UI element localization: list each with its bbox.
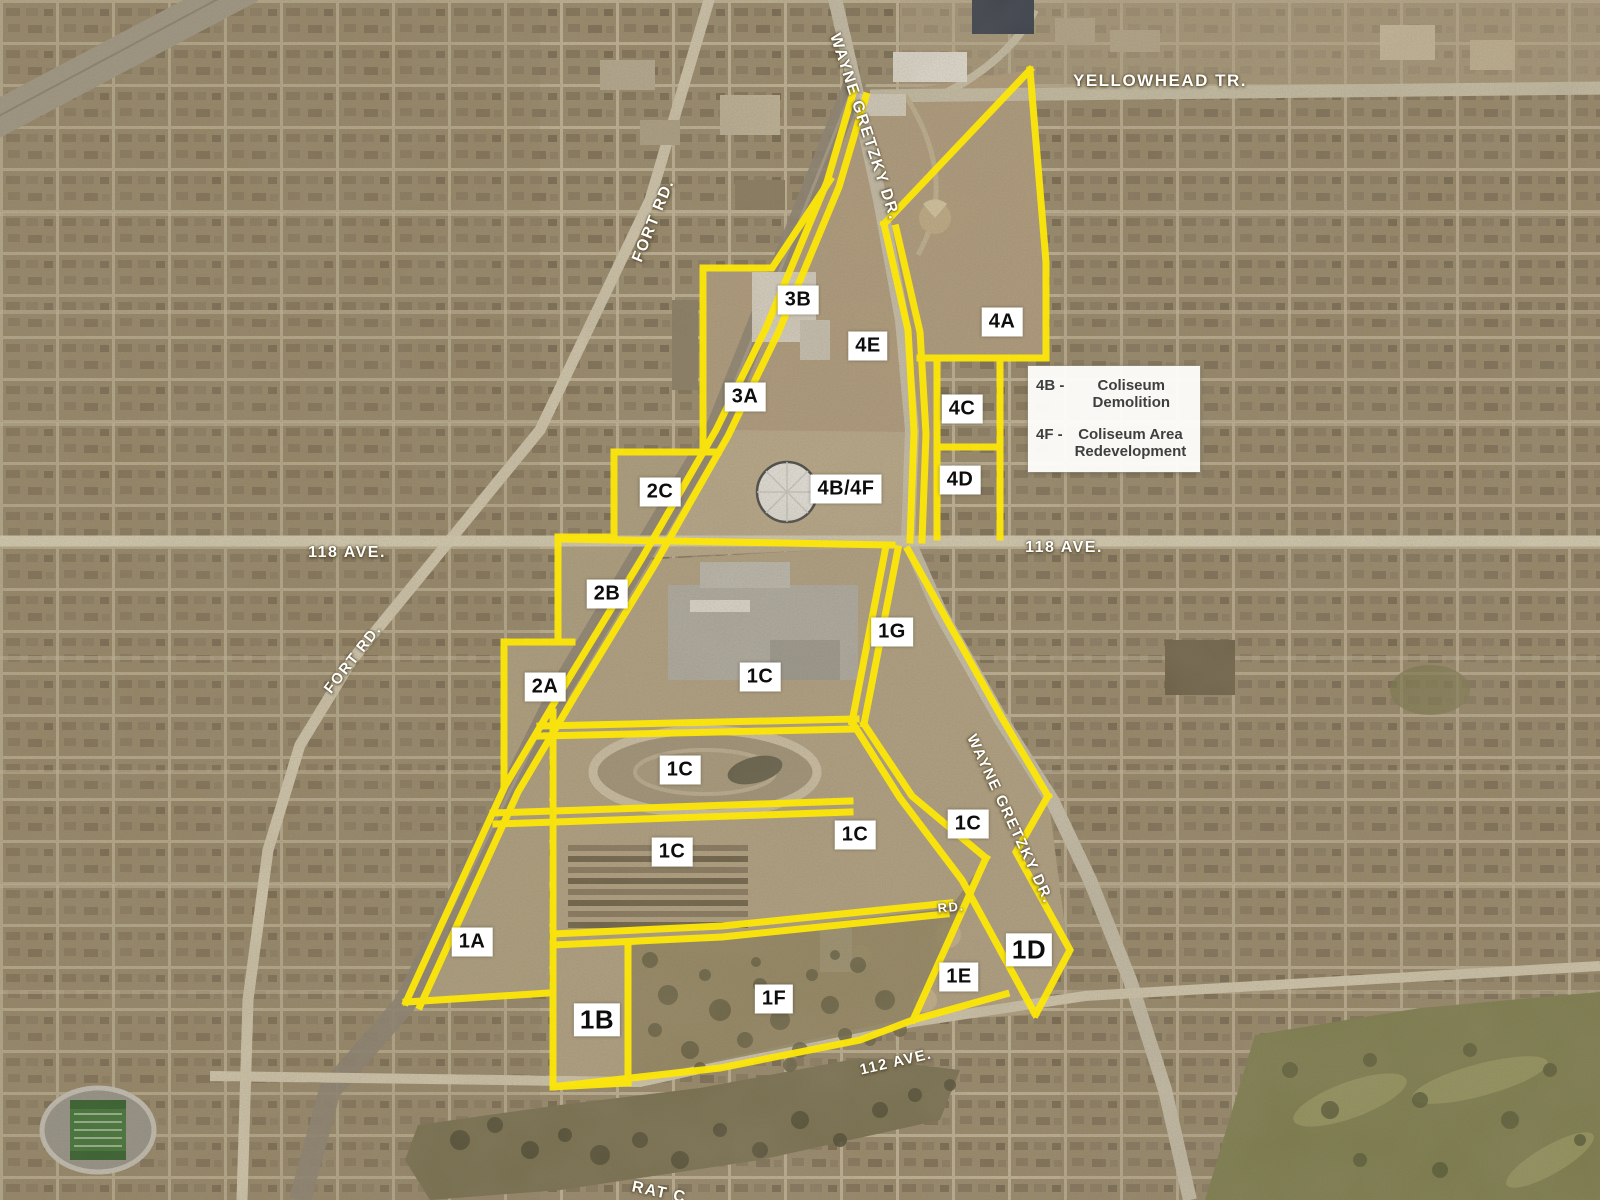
legend-separator: - (1054, 426, 1067, 443)
legend-text: Coliseum Area Redevelopment (1067, 426, 1194, 461)
map-legend: 4B - Coliseum Demolition 4F - Coliseum A… (1028, 366, 1200, 472)
legend-text: Coliseum Demolition (1069, 377, 1194, 412)
zone-boundary-overlay (0, 0, 1600, 1200)
zone-boundary-lines (406, 70, 1070, 1087)
legend-code: 4F (1036, 426, 1054, 443)
legend-code: 4B (1036, 377, 1055, 394)
legend-separator: - (1055, 377, 1068, 394)
legend-item-4b: 4B - Coliseum Demolition (1036, 377, 1194, 412)
legend-item-4f: 4F - Coliseum Area Redevelopment (1036, 426, 1194, 461)
aerial-redevelopment-map: 3B4E4A3A4C4B/4F4D2C2B1G2A1C1C1C1C1C1A1D1… (0, 0, 1600, 1200)
